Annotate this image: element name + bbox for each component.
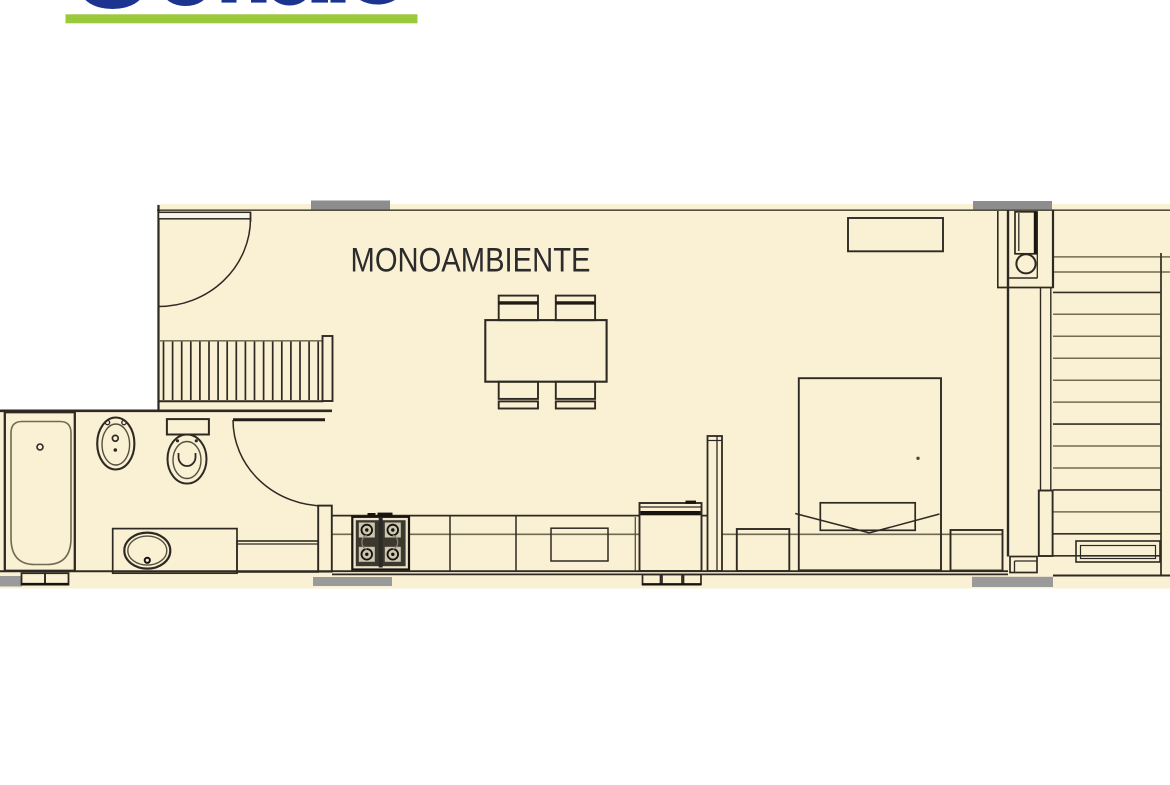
svg-text:MONOAMBIENTE: MONOAMBIENTE <box>351 241 591 279</box>
